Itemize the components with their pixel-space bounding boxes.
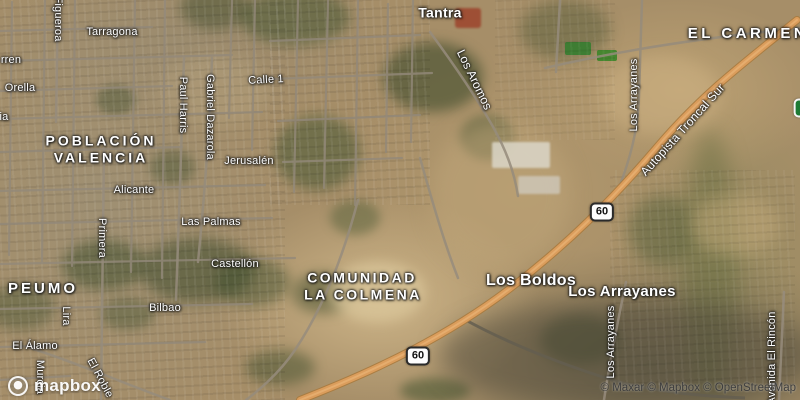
map-label-el-alamo: El Álamo [12, 340, 58, 352]
vegetation-patch [180, 0, 250, 30]
vegetation-patch [215, 258, 290, 306]
map-label-los-boldos: Los Boldos [486, 272, 576, 290]
industrial-building [492, 142, 550, 168]
map-label-figueroa: Figueroa [52, 0, 64, 42]
vegetation-patch [383, 42, 483, 112]
map-label-ia-partial: ia [0, 111, 8, 123]
red-roof-buildings [455, 8, 481, 28]
map-label-el-carmen: EL CARMEN [688, 26, 800, 43]
satellite-map[interactable]: EL CARMENPOBLACIÓNVALENCIAEL PEUMOCOMUNI… [0, 0, 800, 400]
green-field [565, 42, 591, 55]
route-60-shield-west: 60 [406, 347, 430, 366]
vegetation-patch [245, 350, 315, 385]
vegetation-patch [100, 298, 155, 330]
map-label-los-arrayanes-town: Los Arrayanes [568, 284, 676, 301]
vegetation-patch [62, 240, 147, 290]
sand-patch [330, 262, 425, 322]
sand-patch [160, 55, 270, 125]
map-label-tarragona: Tarragona [86, 26, 137, 38]
vegetation-patch [150, 150, 195, 185]
map-label-las-palmas: Las Palmas [181, 216, 240, 228]
sand-patch [600, 55, 720, 135]
vegetation-patch [275, 115, 360, 190]
vegetation-patch [330, 200, 380, 235]
map-label-valencia: VALENCIA [54, 150, 149, 165]
industrial-building [518, 176, 560, 194]
map-label-rren-partial: rren [1, 54, 21, 66]
vegetation-patch [96, 85, 136, 115]
map-label-orella: Orella [5, 82, 36, 94]
map-label-lira: Lira [60, 306, 72, 325]
route-60-shield-east: 60 [590, 203, 614, 222]
mapbox-logo[interactable]: mapbox [8, 376, 101, 396]
route-shield-green-edge: F [794, 99, 800, 118]
mapbox-logo-icon [8, 376, 28, 396]
vegetation-patch [400, 378, 470, 400]
map-label-alicante: Alicante [114, 184, 155, 196]
vegetation-patch [0, 285, 55, 330]
green-field [597, 50, 617, 61]
map-label-poblacion: POBLACIÓN [46, 133, 157, 148]
vegetation-patch [240, 0, 350, 45]
map-label-jerusalen: Jerusalén [224, 155, 274, 167]
mapbox-wordmark: mapbox [34, 376, 101, 396]
sand-patch [690, 195, 780, 255]
map-attribution[interactable]: © Maxar © Mapbox © OpenStreetMap [601, 382, 796, 394]
